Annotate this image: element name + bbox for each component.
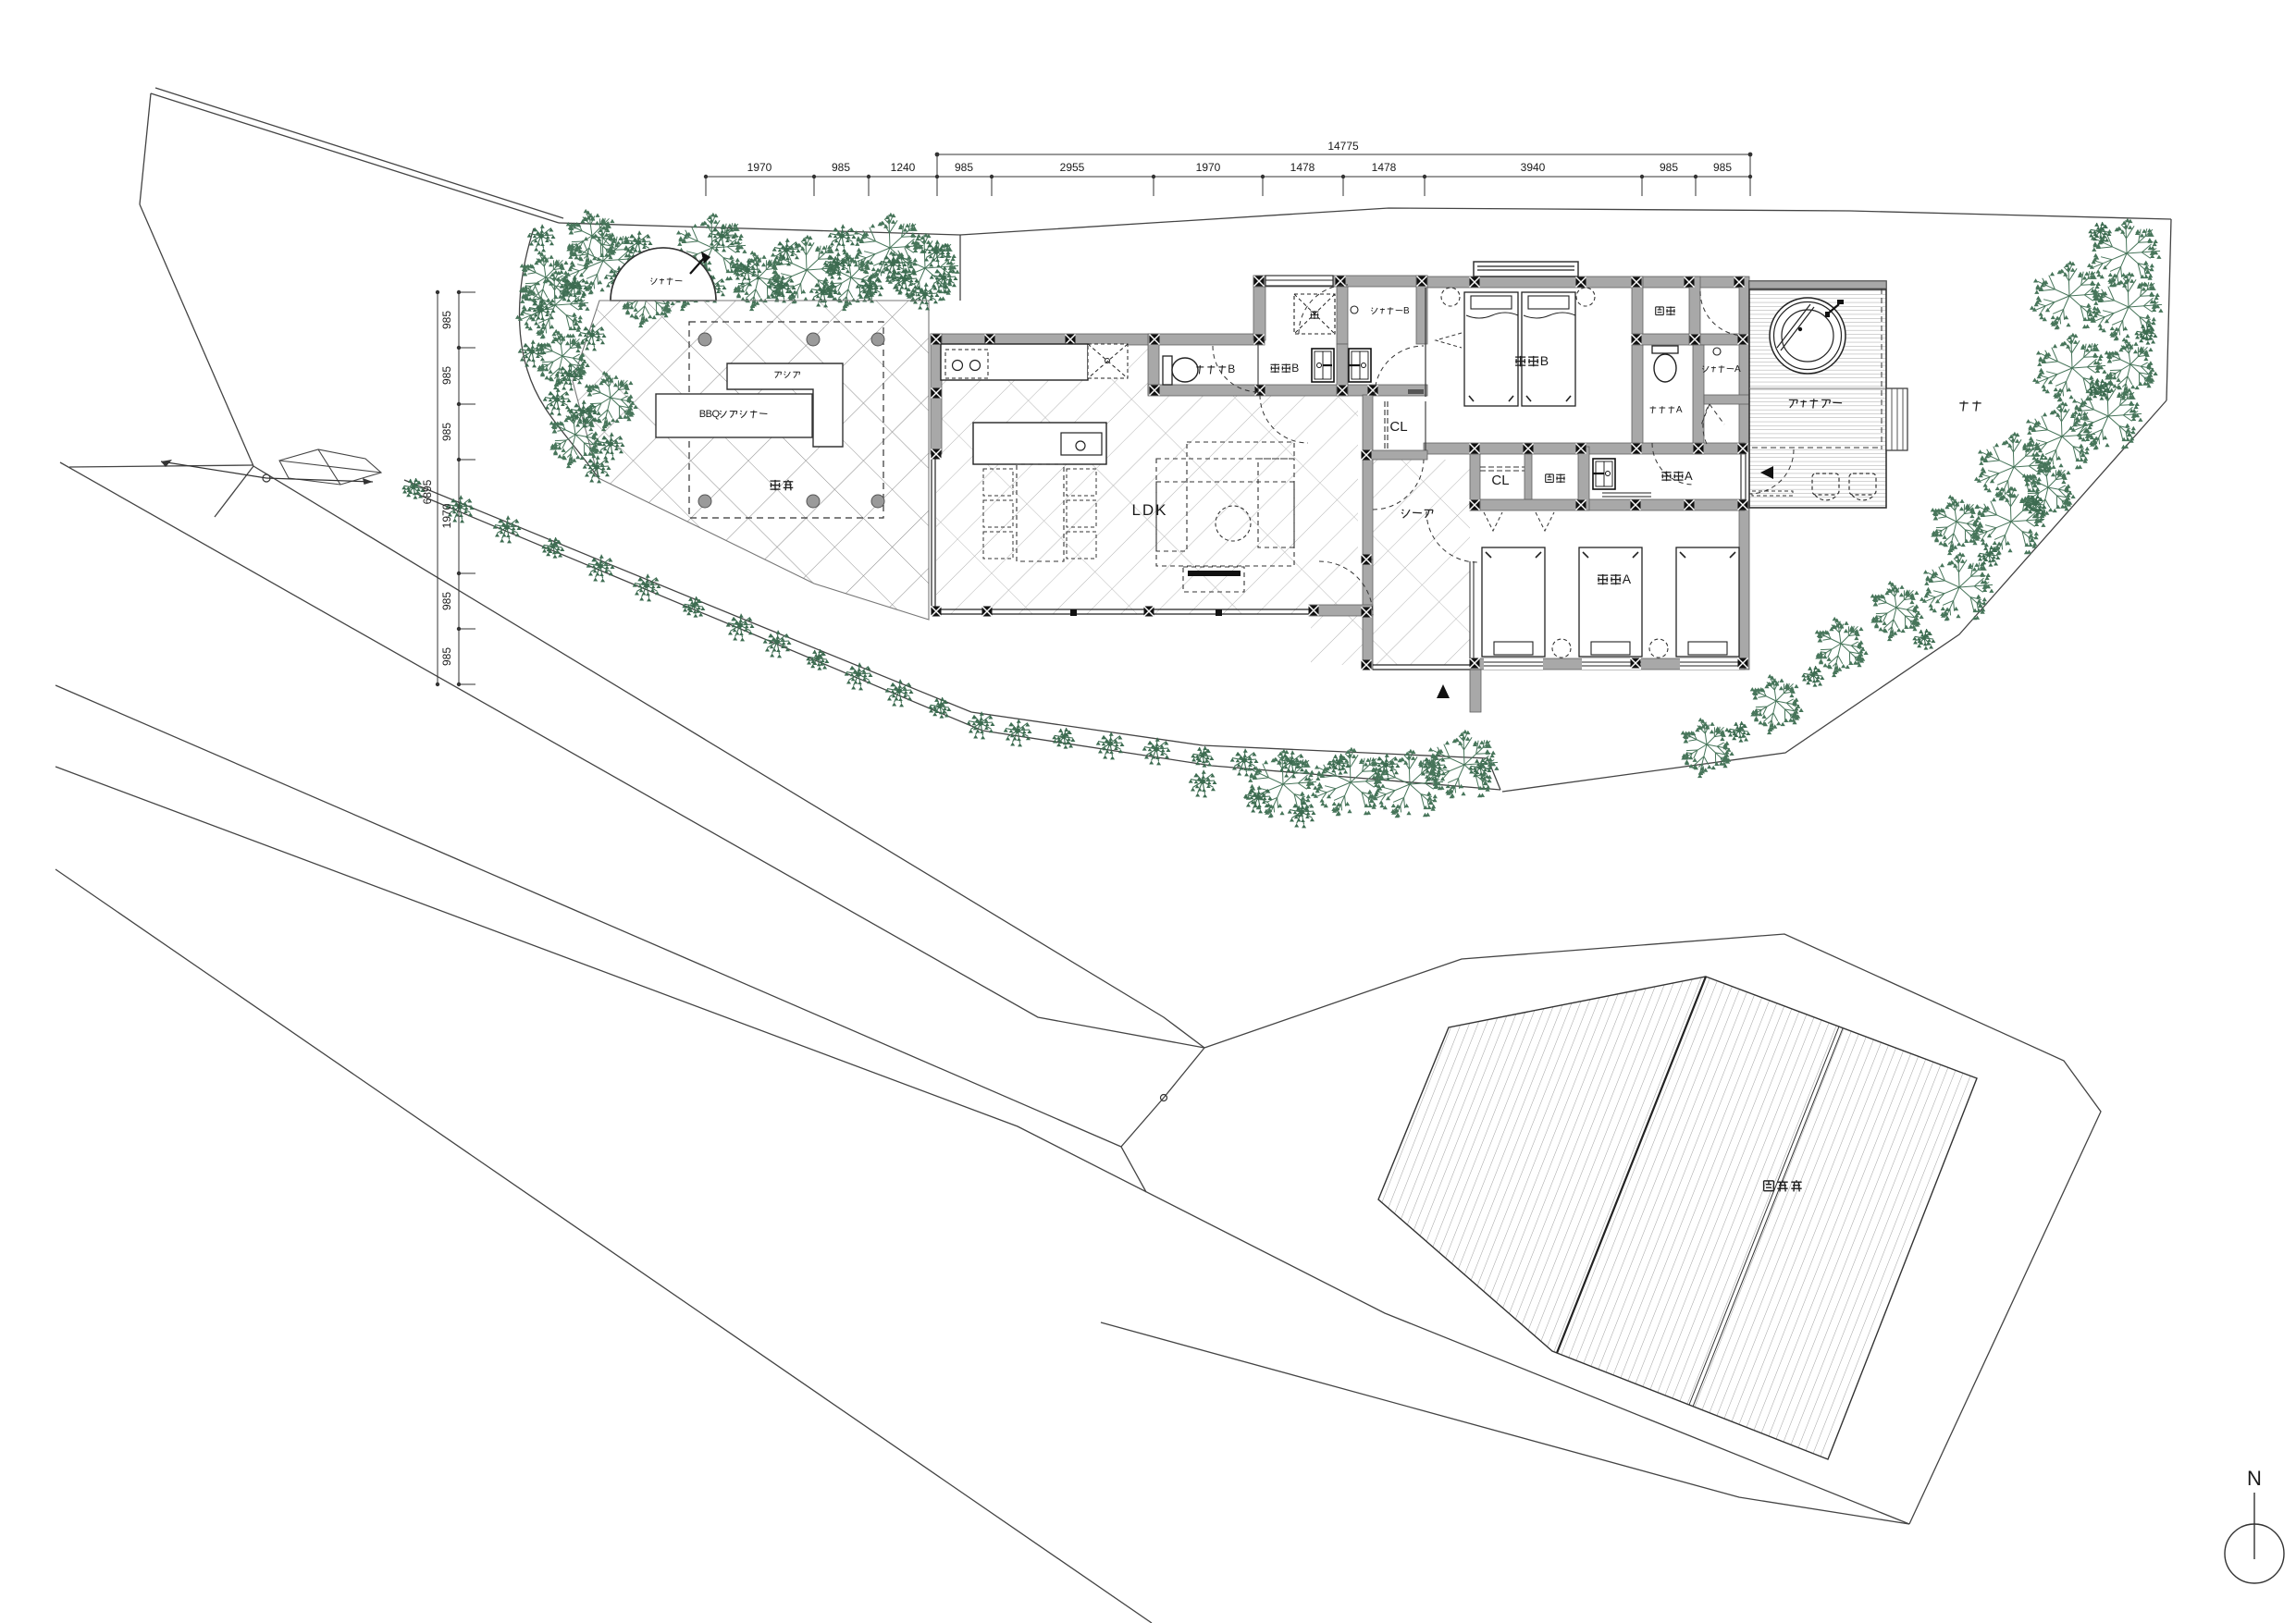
svg-text:B: B bbox=[1403, 306, 1410, 316]
svg-text:985: 985 bbox=[1660, 161, 1678, 174]
svg-text:6895: 6895 bbox=[421, 479, 434, 504]
svg-text:1478: 1478 bbox=[1372, 161, 1397, 174]
svg-text:A: A bbox=[1734, 364, 1741, 375]
svg-text:N: N bbox=[2247, 1467, 2262, 1490]
svg-text:985: 985 bbox=[440, 647, 453, 666]
svg-text:985: 985 bbox=[440, 311, 453, 329]
svg-text:B: B bbox=[1540, 353, 1549, 368]
svg-text:LDK: LDK bbox=[1131, 501, 1167, 519]
svg-text:A: A bbox=[1685, 469, 1693, 483]
svg-text:A: A bbox=[1676, 405, 1683, 415]
svg-text:B: B bbox=[1291, 362, 1299, 375]
svg-text:1970: 1970 bbox=[440, 503, 453, 528]
svg-text:CL: CL bbox=[1389, 419, 1407, 435]
svg-text:985: 985 bbox=[955, 161, 973, 174]
svg-text:1240: 1240 bbox=[891, 161, 916, 174]
svg-text:3940: 3940 bbox=[1521, 161, 1546, 174]
svg-text:Q: Q bbox=[712, 409, 721, 420]
svg-text:CL: CL bbox=[1491, 473, 1509, 488]
svg-text:14775: 14775 bbox=[1327, 140, 1359, 153]
svg-text:985: 985 bbox=[440, 366, 453, 385]
svg-text:2955: 2955 bbox=[1060, 161, 1085, 174]
svg-text:1970: 1970 bbox=[747, 161, 772, 174]
svg-text:A: A bbox=[1623, 572, 1632, 586]
svg-text:B: B bbox=[1228, 363, 1235, 375]
svg-text:985: 985 bbox=[832, 161, 850, 174]
svg-text:1478: 1478 bbox=[1290, 161, 1315, 174]
svg-text:985: 985 bbox=[1713, 161, 1732, 174]
svg-text:985: 985 bbox=[440, 592, 453, 610]
svg-text:985: 985 bbox=[440, 423, 453, 441]
svg-text:1970: 1970 bbox=[1196, 161, 1221, 174]
